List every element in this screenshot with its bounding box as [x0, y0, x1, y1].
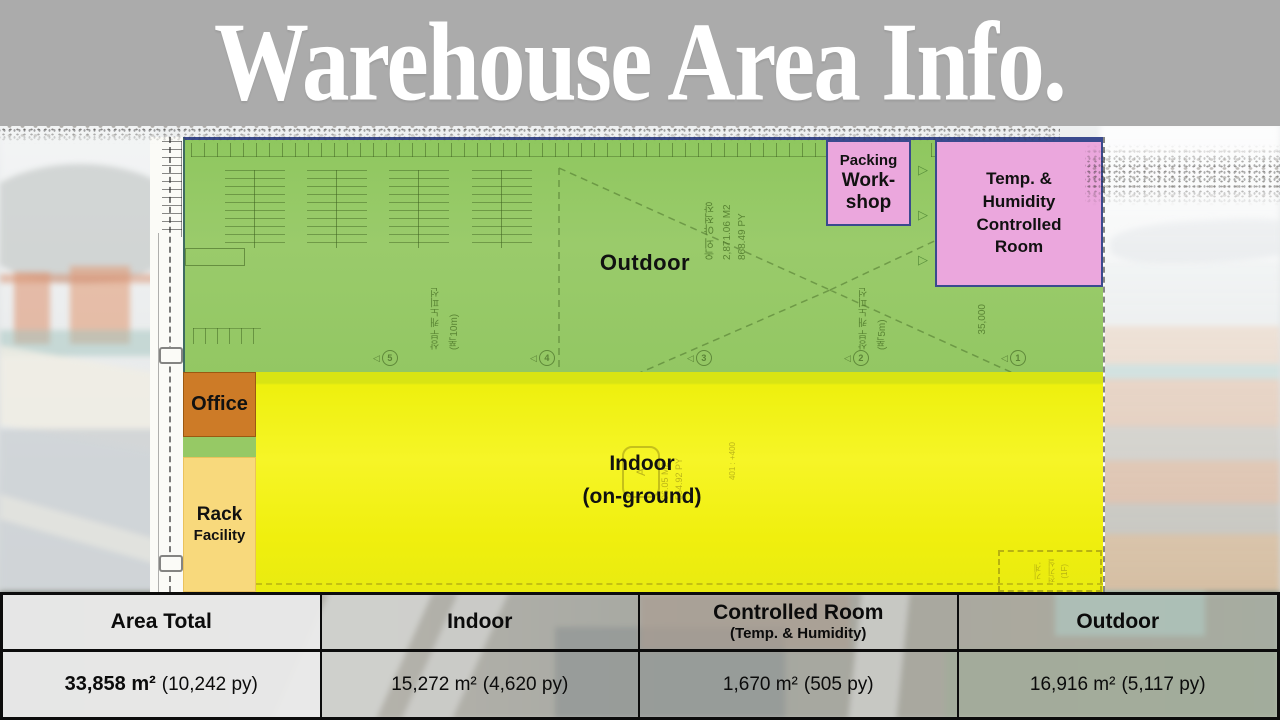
arrow-left-icon: ◁ [687, 353, 694, 364]
packing-workshop-box: Packing Work- shop [826, 140, 911, 226]
table-header-indoor: Indoor [322, 595, 641, 652]
table-header-area-total: Area Total [3, 595, 322, 652]
photo-left-strip [0, 124, 156, 592]
drawing-dock-comb [162, 141, 182, 237]
drawing-mark [159, 347, 183, 364]
slide: 옥외 야적장 2,871.06 M2 868.49 PY 상부 캐노피선 (폭1… [0, 0, 1280, 720]
page-title: Warehouse Area Info. [214, 7, 1065, 119]
rack-facility-area: Rack Facility [183, 457, 256, 592]
indoor-area: A 96.05 M2 554.92 PY 401 : +400 기계, 전기실 … [256, 372, 1103, 592]
indoor-label: Indoor (on-ground) [542, 448, 742, 513]
arrow-left-icon: ◁ [1001, 353, 1008, 364]
drawing-dashed-line [256, 583, 1103, 585]
canopy-annotation: 상부 캐노피선 (폭10m) [429, 262, 462, 350]
title-bar: Warehouse Area Info. [0, 0, 1280, 126]
temp-humidity-room-label: Temp. & [986, 168, 1052, 191]
table-value-outdoor: 16,916 m²(5,117 py) [959, 652, 1278, 717]
dock-arrow-icon: ▷ [918, 207, 928, 223]
area-summary-table: Area Total Indoor Controlled Room (Temp.… [0, 592, 1280, 720]
photo-right-strip [1100, 124, 1280, 592]
grid-marker: ◁4 [530, 350, 555, 366]
table-value-controlled-room: 1,670 m²(505 py) [640, 652, 959, 717]
arrow-left-icon: ◁ [844, 353, 851, 364]
drawing-mark [159, 555, 183, 572]
grid-marker: ◁3 [687, 350, 712, 366]
dimension-annotation: 35,000 [977, 304, 988, 348]
packing-workshop-label: Packing [840, 152, 898, 170]
dock-arrow-icon: ▷ [918, 162, 928, 178]
canopy-annotation: 상부 캐노피선 (폭5m) [857, 262, 890, 350]
office-label: Office [191, 393, 248, 416]
arrow-left-icon: ◁ [530, 353, 537, 364]
dock-arrow-icon: ▷ [918, 252, 928, 268]
table-value-indoor: 15,272 m²(4,620 py) [322, 652, 641, 717]
grid-marker: ◁1 [1001, 350, 1026, 366]
office-area: Office [183, 372, 256, 437]
temp-humidity-room-box: Temp. & Humidity Controlled Room [935, 140, 1103, 287]
rack-facility-label: Rack [197, 503, 242, 527]
arrow-left-icon: ◁ [373, 353, 380, 364]
outdoor-label: Outdoor [553, 250, 737, 276]
table-header-outdoor: Outdoor [959, 595, 1278, 652]
grid-marker: ◁2 [844, 350, 869, 366]
table-header-controlled-room: Controlled Room (Temp. & Humidity) [640, 595, 959, 652]
drawing-solid-line [158, 233, 159, 592]
rack-facility-label-2: Facility [194, 527, 246, 546]
grid-marker: ◁5 [373, 350, 398, 366]
mech-room-annotation: 기계, 전기실 (1F) [998, 550, 1102, 592]
table-value-area-total: 33,858 m²(10,242 py) [3, 652, 322, 717]
